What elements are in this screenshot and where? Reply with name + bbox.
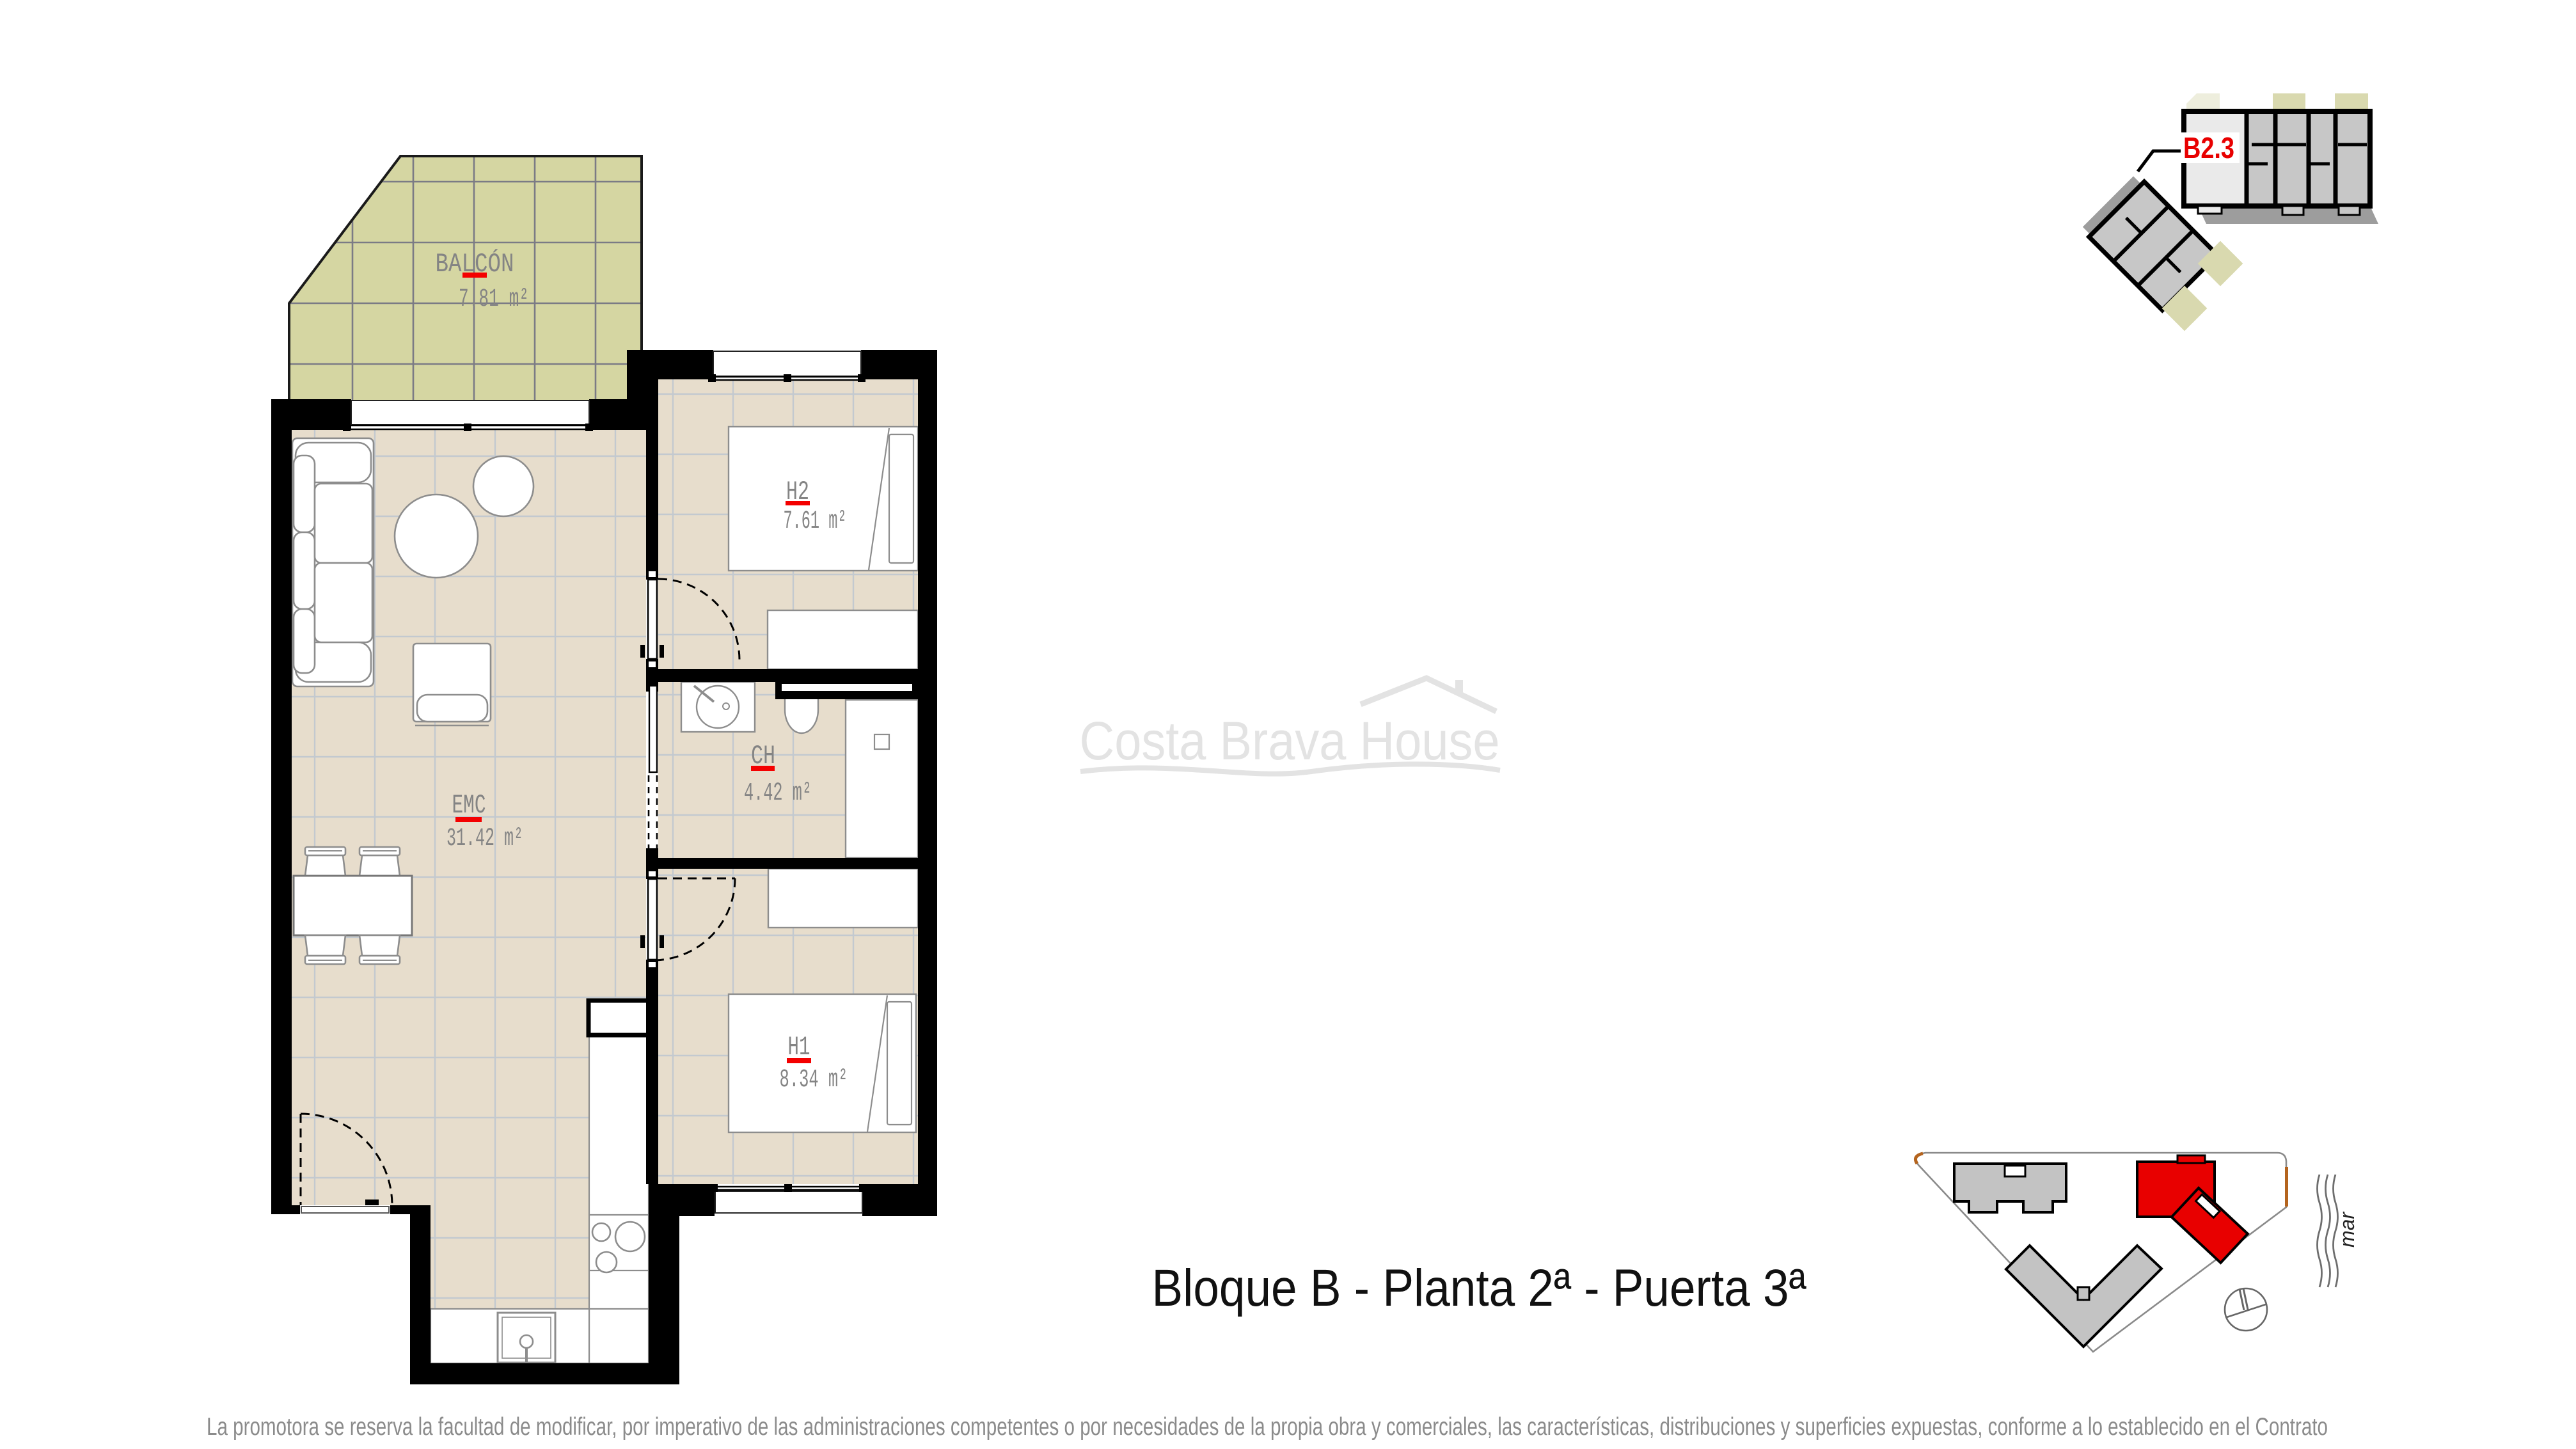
svg-text:Bloque B - Planta 2ª - Puerta: Bloque B - Planta 2ª - Puerta 3ª xyxy=(1152,1259,1807,1317)
svg-text:8.34 m²: 8.34 m² xyxy=(780,1066,848,1095)
svg-text:mar: mar xyxy=(2335,1212,2359,1247)
svg-text:Costa Brava House: Costa Brava House xyxy=(1080,711,1500,771)
svg-text:B2.3: B2.3 xyxy=(2183,131,2234,164)
svg-text:31.42 m²: 31.42 m² xyxy=(446,825,523,853)
svg-text:H1: H1 xyxy=(788,1032,810,1063)
svg-text:4.42 m²: 4.42 m² xyxy=(744,779,812,808)
svg-text:7.61 m²: 7.61 m² xyxy=(784,507,847,536)
svg-text:7.81 m²: 7.81 m² xyxy=(459,285,529,314)
svg-text:La promotora se reserva la fac: La promotora se reserva la facultad de m… xyxy=(207,1413,2328,1441)
svg-text:EMC: EMC xyxy=(452,790,486,821)
